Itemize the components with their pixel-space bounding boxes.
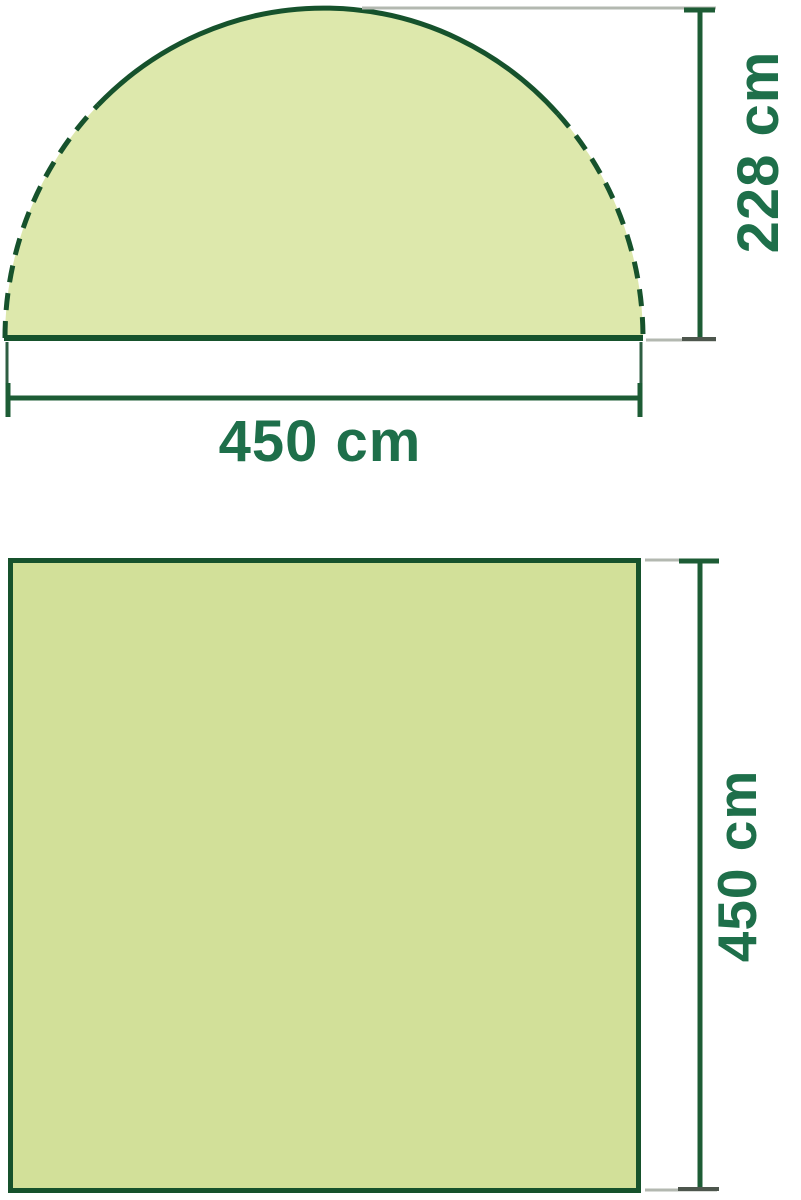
floor-depth-label: 450 cm bbox=[706, 770, 768, 963]
floor-shape bbox=[11, 561, 639, 1191]
floor-depth-dimension: 450 cm bbox=[645, 560, 768, 1190]
side-width-dimension: 450 cm bbox=[7, 342, 641, 474]
floor-plan-view: 450 cm bbox=[11, 560, 769, 1191]
diagram-svg: 450 cm 228 cm 450 cm bbox=[0, 0, 801, 1200]
side-elevation-view: 450 cm 228 cm bbox=[4, 8, 791, 474]
side-width-label: 450 cm bbox=[219, 409, 422, 474]
side-height-label: 228 cm bbox=[726, 51, 791, 254]
dimension-diagram: 450 cm 228 cm 450 cm bbox=[0, 0, 801, 1200]
dome-shape-fill bbox=[5, 8, 643, 338]
